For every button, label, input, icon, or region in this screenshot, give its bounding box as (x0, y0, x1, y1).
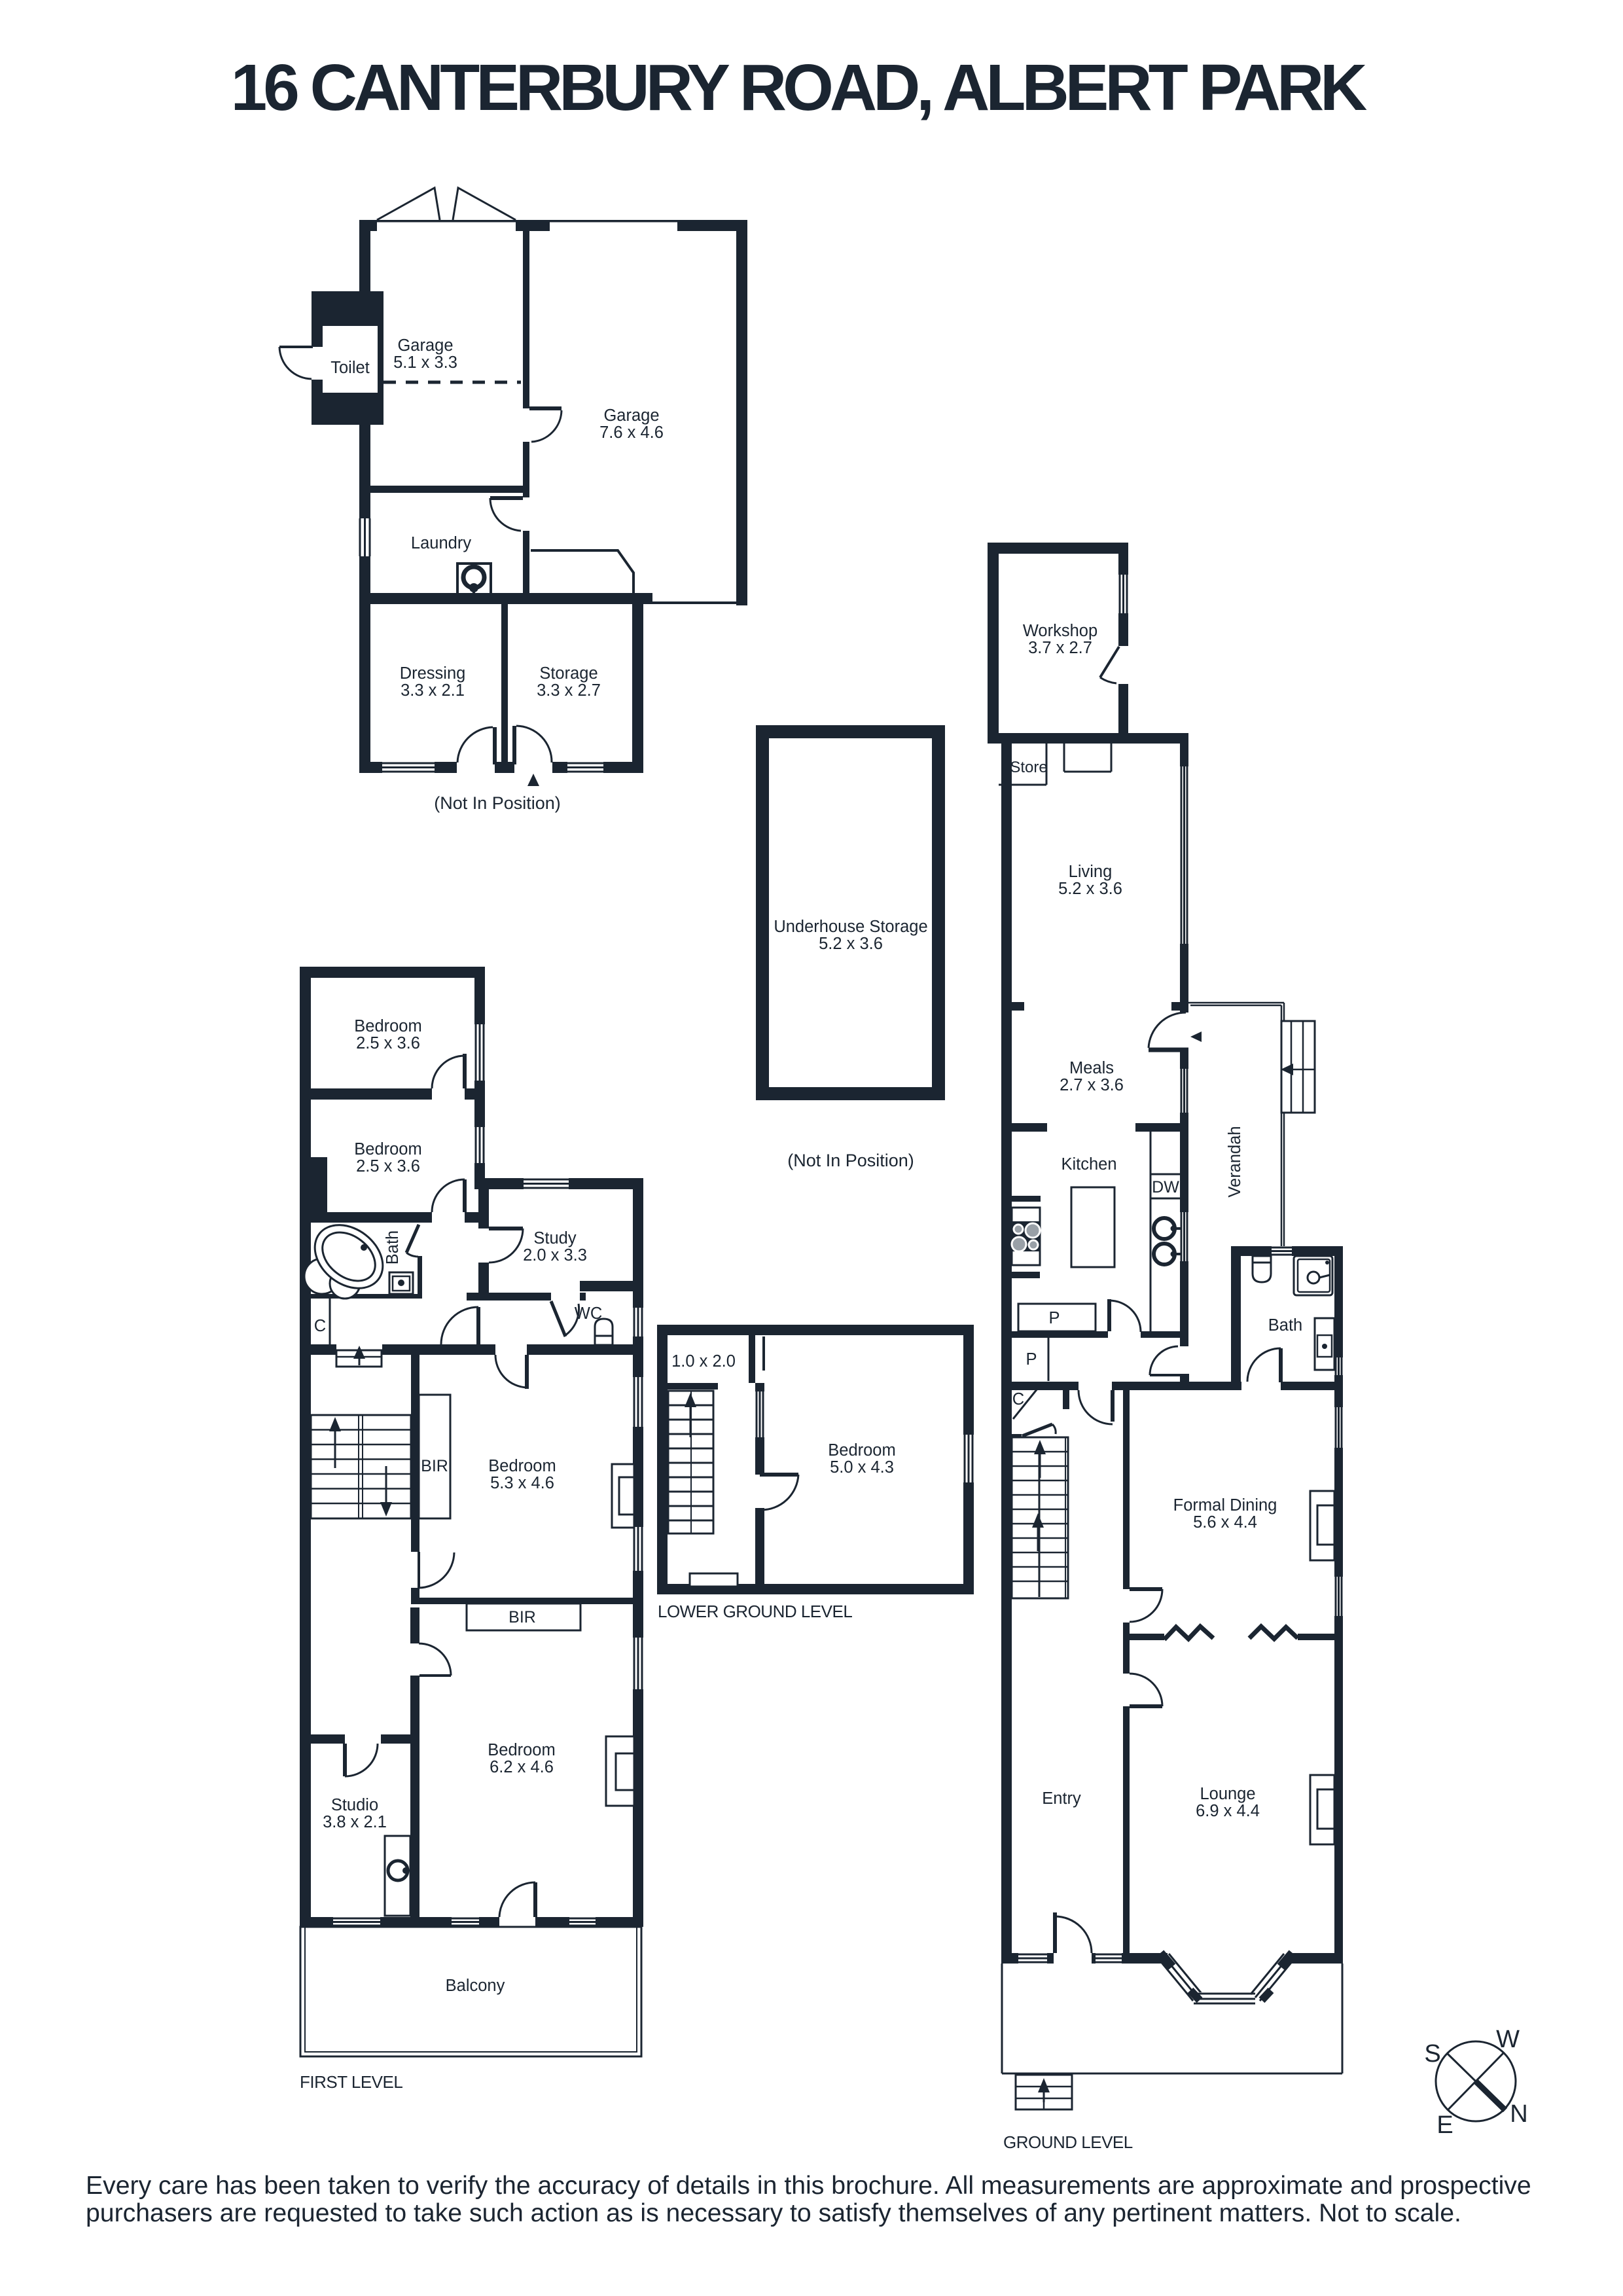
svg-text:(Not In Position): (Not In Position) (787, 1151, 914, 1170)
svg-text:(Not In Position): (Not In Position) (434, 793, 561, 813)
svg-text:Toilet: Toilet (330, 359, 370, 377)
svg-text:BIR: BIR (508, 1608, 536, 1626)
svg-text:Store: Store (1010, 759, 1047, 776)
svg-text:P: P (1026, 1350, 1037, 1369)
svg-text:Studio: Studio (331, 1796, 378, 1814)
svg-text:7.6 x 4.6: 7.6 x 4.6 (599, 423, 664, 442)
svg-text:GROUND LEVEL: GROUND LEVEL (1003, 2132, 1133, 2152)
svg-text:Bedroom: Bedroom (354, 1140, 421, 1158)
svg-text:2.5 x 3.6: 2.5 x 3.6 (356, 1157, 420, 1175)
svg-text:LOWER GROUND LEVEL: LOWER GROUND LEVEL (658, 1602, 852, 1621)
svg-text:2.0 x 3.3: 2.0 x 3.3 (523, 1246, 587, 1265)
svg-text:Bedroom: Bedroom (354, 1017, 421, 1035)
svg-text:N: N (1510, 2100, 1527, 2128)
svg-text:5.2 x 3.6: 5.2 x 3.6 (819, 935, 883, 953)
svg-text:6.2 x 4.6: 6.2 x 4.6 (490, 1758, 554, 1776)
svg-text:Storage: Storage (539, 664, 597, 683)
svg-text:Underhouse Storage: Underhouse Storage (774, 918, 927, 936)
svg-text:Study: Study (533, 1229, 576, 1247)
svg-text:DW: DW (1152, 1178, 1179, 1196)
svg-text:BIR: BIR (421, 1457, 448, 1475)
svg-text:5.6 x 4.4: 5.6 x 4.4 (1193, 1513, 1257, 1532)
svg-text:P: P (1048, 1309, 1060, 1327)
svg-text:C: C (1012, 1390, 1024, 1408)
svg-text:6.9 x 4.4: 6.9 x 4.4 (1196, 1802, 1260, 1820)
svg-text:3.7 x 2.7: 3.7 x 2.7 (1028, 639, 1092, 657)
svg-text:W: W (1496, 2026, 1520, 2053)
svg-text:16 CANTERBURY ROAD, ALBERT PAR: 16 CANTERBURY ROAD, ALBERT PARK (231, 51, 1368, 124)
svg-text:FIRST LEVEL: FIRST LEVEL (300, 2072, 402, 2092)
svg-text:3.3 x 2.7: 3.3 x 2.7 (537, 681, 601, 700)
svg-text:Verandah: Verandah (1226, 1126, 1244, 1197)
svg-text:5.3 x 4.6: 5.3 x 4.6 (490, 1474, 554, 1492)
svg-text:2.5 x 3.6: 2.5 x 3.6 (356, 1034, 420, 1052)
svg-text:Meals: Meals (1069, 1059, 1114, 1077)
svg-text:5.2 x 3.6: 5.2 x 3.6 (1058, 880, 1122, 898)
svg-text:1.0 x 2.0: 1.0 x 2.0 (671, 1352, 736, 1371)
svg-text:Garage: Garage (397, 336, 453, 355)
svg-text:Bath: Bath (1268, 1316, 1302, 1335)
svg-text:5.1 x 3.3: 5.1 x 3.3 (393, 353, 457, 372)
svg-text:WC: WC (575, 1304, 602, 1323)
svg-text:3.3 x 2.1: 3.3 x 2.1 (401, 681, 465, 700)
svg-text:Living: Living (1069, 863, 1113, 881)
svg-text:2.7 x 3.6: 2.7 x 3.6 (1060, 1076, 1124, 1094)
svg-text:5.0 x 4.3: 5.0 x 4.3 (830, 1458, 894, 1477)
svg-text:Every care has been taken to v: Every care has been taken to verify the … (86, 2172, 1531, 2200)
svg-text:purchasers are requested to ta: purchasers are requested to take such ac… (86, 2199, 1461, 2227)
svg-text:Bath: Bath (383, 1230, 402, 1265)
svg-text:Balcony: Balcony (446, 1977, 505, 1995)
svg-text:Bedroom: Bedroom (488, 1741, 555, 1759)
svg-text:C: C (314, 1317, 326, 1335)
svg-text:Formal Dining: Formal Dining (1173, 1496, 1277, 1515)
svg-text:3.8 x 2.1: 3.8 x 2.1 (323, 1813, 387, 1831)
svg-text:Workshop: Workshop (1023, 622, 1097, 640)
svg-text:Laundry: Laundry (411, 534, 471, 552)
svg-text:Bedroom: Bedroom (488, 1457, 556, 1475)
svg-text:E: E (1436, 2111, 1453, 2139)
svg-text:Kitchen: Kitchen (1061, 1155, 1116, 1174)
svg-text:S: S (1424, 2040, 1440, 2068)
svg-text:Garage: Garage (603, 406, 659, 425)
svg-text:Entry: Entry (1042, 1789, 1081, 1808)
svg-text:Lounge: Lounge (1200, 1785, 1255, 1803)
svg-text:Bedroom: Bedroom (828, 1441, 895, 1460)
svg-text:Dressing: Dressing (400, 664, 466, 683)
